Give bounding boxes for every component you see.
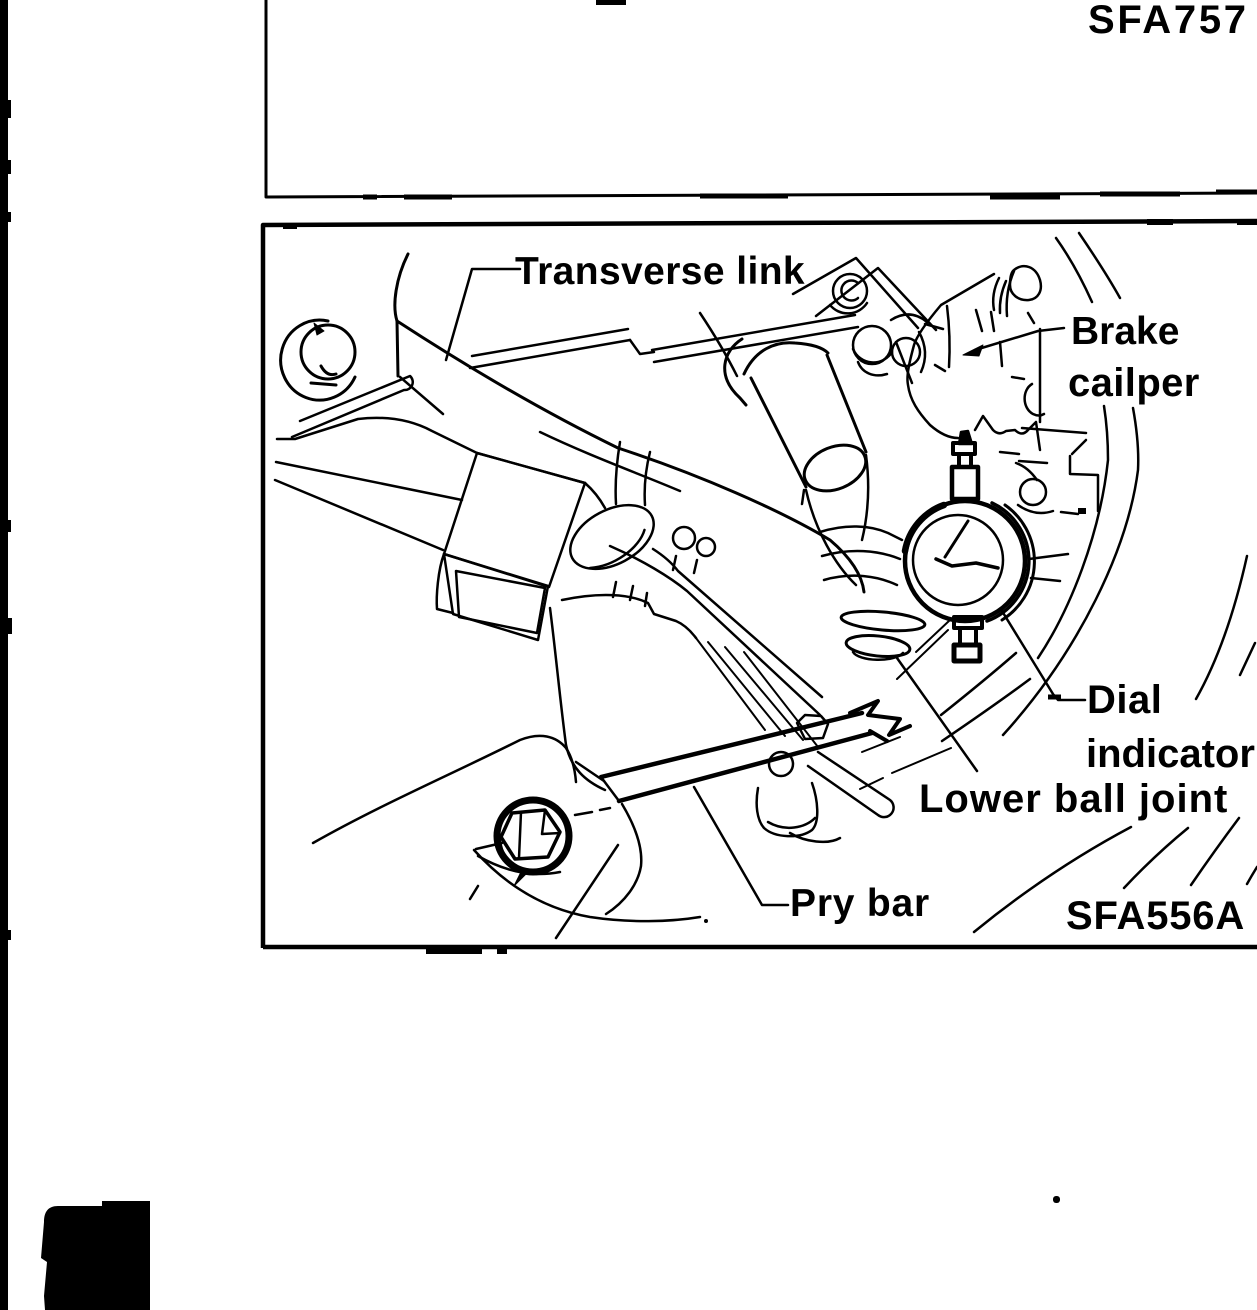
- svg-text:SFA757: SFA757: [1088, 0, 1249, 42]
- svg-text:Lower ball joint: Lower ball joint: [919, 777, 1228, 821]
- svg-text:cailper: cailper: [1068, 361, 1200, 405]
- svg-text:Pry bar: Pry bar: [790, 882, 930, 925]
- svg-text:Brake: Brake: [1071, 310, 1179, 353]
- svg-text:Dial: Dial: [1087, 678, 1162, 722]
- svg-text:Transverse link: Transverse link: [515, 250, 805, 293]
- svg-text:SFA556A: SFA556A: [1066, 894, 1245, 938]
- svg-text:indicator: indicator: [1086, 732, 1255, 776]
